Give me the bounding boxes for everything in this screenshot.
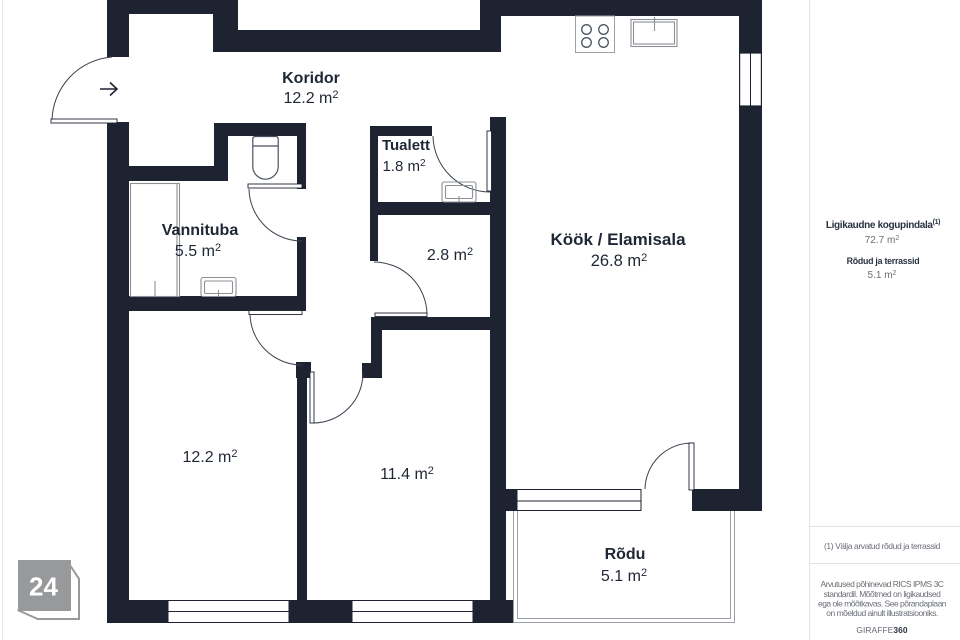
svg-text:Koridor: Koridor	[282, 70, 340, 87]
svg-text:(1) Välja arvatud rõdud ja ter: (1) Välja arvatud rõdud ja terrassid	[824, 541, 941, 551]
svg-text:72.7 m2: 72.7 m2	[865, 235, 900, 246]
svg-text:Arvutused põhinevad RICS IPMS: Arvutused põhinevad RICS IPMS 3C	[821, 579, 944, 589]
svg-text:2.8 m2: 2.8 m2	[427, 246, 473, 264]
svg-text:Rõdud ja terrassid: Rõdud ja terrassid	[847, 256, 920, 266]
svg-text:standardil. Mõõtmed on ligikau: standardil. Mõõtmed on ligikaudsed	[824, 589, 941, 599]
svg-text:GIRAFFE360: GIRAFFE360	[856, 625, 908, 635]
svg-text:5.1 m2: 5.1 m2	[601, 567, 647, 585]
svg-text:Tualett: Tualett	[382, 137, 430, 154]
svg-text:1.8 m2: 1.8 m2	[382, 158, 426, 175]
svg-text:Rõdu: Rõdu	[605, 546, 646, 563]
svg-text:11.4 m2: 11.4 m2	[380, 465, 434, 483]
svg-text:ega ole mõõtkavas. See põranda: ega ole mõõtkavas. See põrandaplaan	[818, 599, 947, 609]
svg-text:12.2 m2: 12.2 m2	[182, 448, 237, 466]
svg-text:24: 24	[29, 572, 58, 602]
svg-text:12.2 m2: 12.2 m2	[283, 89, 338, 107]
svg-text:Köök / Elamisala: Köök / Elamisala	[550, 230, 686, 249]
svg-text:5.5 m2: 5.5 m2	[175, 242, 221, 260]
svg-text:Ligikaudne kogupindala(1): Ligikaudne kogupindala(1)	[826, 219, 940, 231]
svg-text:on mõeldud ainult illustratsio: on mõeldud ainult illustratsiooniks.	[826, 608, 938, 618]
svg-text:26.8 m2: 26.8 m2	[591, 252, 648, 270]
svg-text:5.1 m2: 5.1 m2	[868, 270, 897, 281]
svg-text:Vannituba: Vannituba	[162, 222, 239, 239]
